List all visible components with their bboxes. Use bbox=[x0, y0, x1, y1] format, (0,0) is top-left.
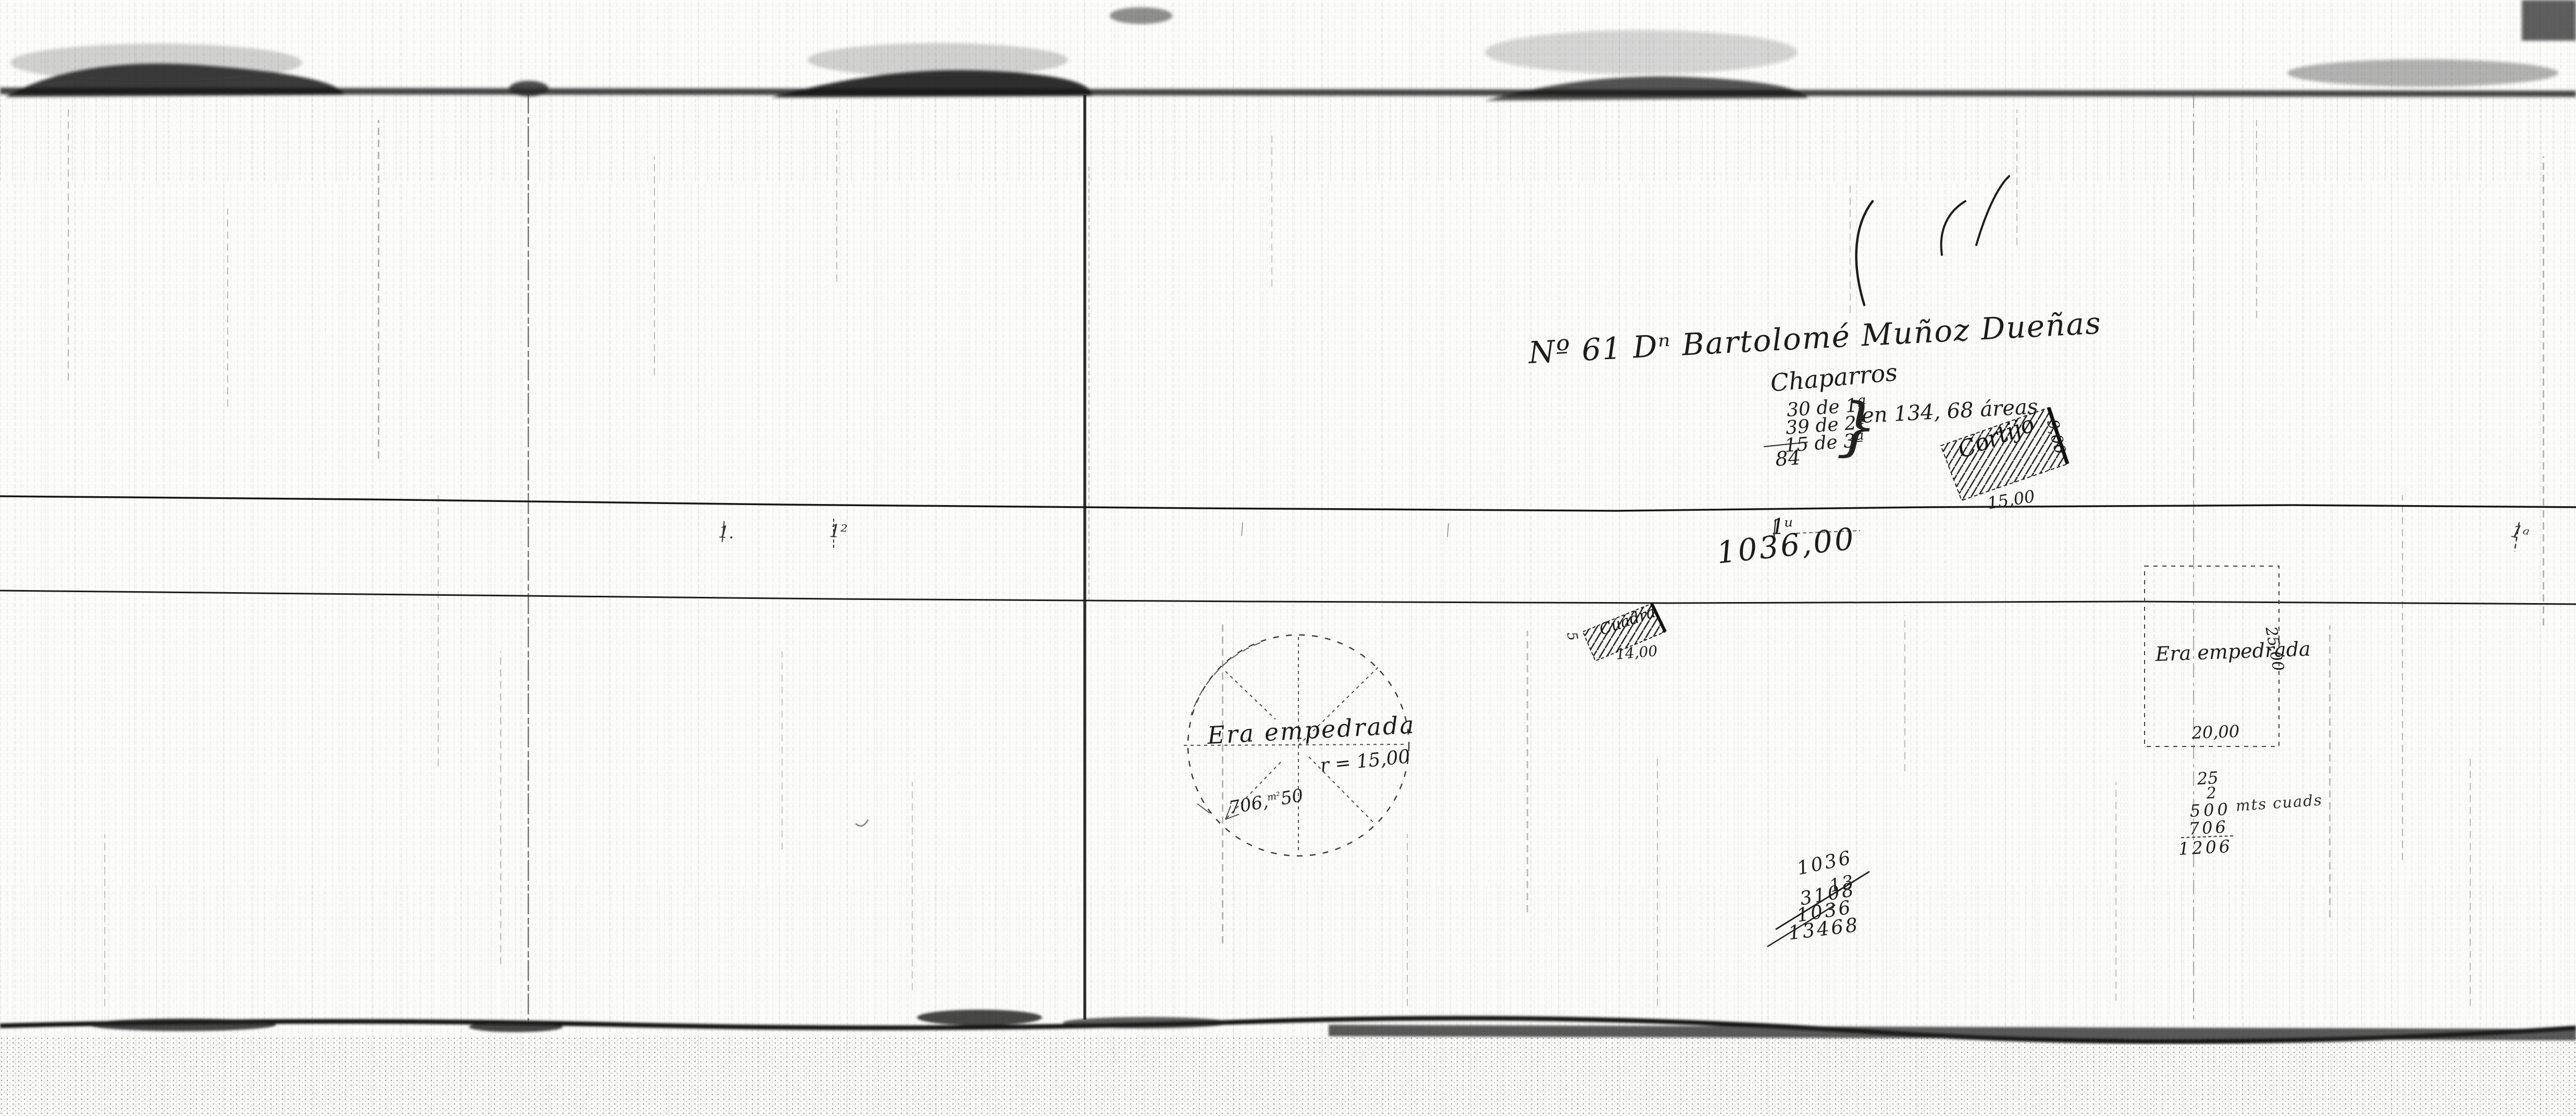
era-square-side-dim: 25,00 bbox=[2262, 626, 2285, 672]
cortijo-front-dim: 15,00 bbox=[1986, 488, 2036, 512]
era-circle-area: 706,m²50 bbox=[1228, 787, 1305, 817]
calc-area-line: 706 bbox=[2188, 818, 2229, 837]
calc-area-total: 1206 bbox=[2178, 838, 2233, 857]
calc-area-line: 2 bbox=[2206, 786, 2217, 802]
era-circle-radius: r = 15,00 bbox=[1319, 747, 1411, 776]
chaparros-total: 84 bbox=[1775, 448, 1801, 469]
road-tick-label: 1. bbox=[718, 523, 735, 541]
road-tick-label: 1ᵃ bbox=[2509, 522, 2531, 544]
era-square-width-dim: 20,00 bbox=[2191, 723, 2240, 741]
cuadra-side-dim: 5 bbox=[1565, 631, 1580, 642]
era-circle-area-rest: 50 bbox=[1279, 785, 1305, 810]
era-circle-label: Era empedrada bbox=[1207, 713, 1416, 747]
road-tick-label: 1ᵘ bbox=[1770, 515, 1794, 537]
page-title: Nº 61 Dⁿ Bartolomé Muñoz Dueñas bbox=[1528, 308, 2102, 368]
road-tick-label: 1² bbox=[829, 522, 848, 541]
cuadra-label: Cuadra bbox=[1597, 605, 1657, 639]
scanned-plan-page: Nº 61 Dⁿ Bartolomé Muñoz Dueñas Chaparro… bbox=[0, 0, 2576, 1116]
era-circle-area-main: 706, bbox=[1227, 791, 1269, 819]
chaparros-heading: Chaparros bbox=[1769, 360, 1898, 395]
handwriting-layer: Nº 61 Dⁿ Bartolomé Muñoz Dueñas Chaparro… bbox=[0, 0, 2576, 1116]
era-square-label: Era empedrada bbox=[2155, 639, 2311, 664]
cuadra-front-dim: 14,00 bbox=[1615, 644, 1658, 662]
calc-area-unit: mts cuads bbox=[2235, 792, 2323, 814]
cortijo-side-dim: 9,00 bbox=[2044, 418, 2067, 456]
era-circle-area-unit: m² bbox=[1266, 790, 1281, 803]
